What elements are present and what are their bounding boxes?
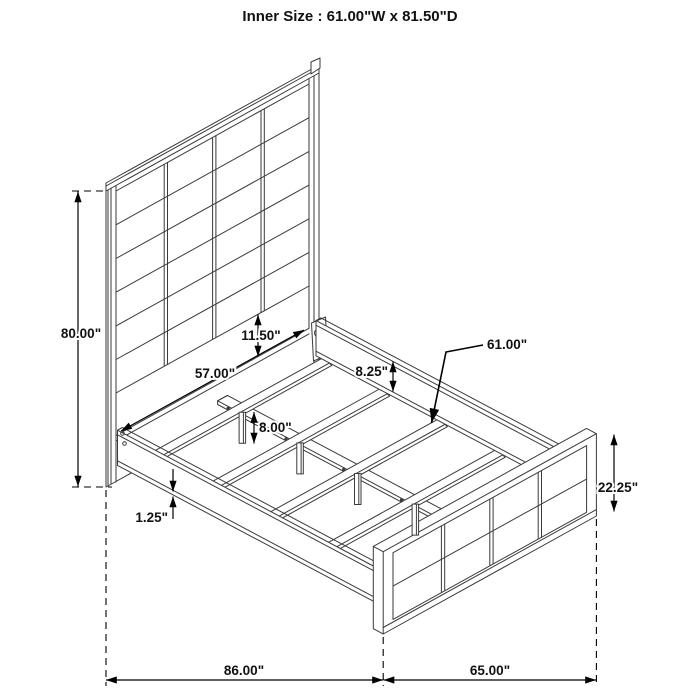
bed-dimension-diagram: 80.00" 57.00" 11.50" 8.25" 61.00" 8.00" …	[0, 0, 700, 700]
dimension-label: 57.00"	[195, 366, 235, 381]
page-title: Inner Size : 61.00"W x 81.50"D	[242, 8, 457, 25]
dimension-label: 1.25"	[135, 510, 168, 525]
dim-headboard-height: 80.00"	[61, 191, 112, 487]
center-leg	[412, 504, 419, 535]
dimension-label: 86.00"	[224, 663, 264, 678]
dimension-label: 8.25"	[355, 364, 388, 379]
center-leg	[297, 443, 304, 474]
dimension-label: 11.50"	[241, 328, 280, 343]
dimension-label: 22.25"	[598, 480, 638, 495]
dim-footboard-height: 22.25"	[598, 435, 638, 512]
diagram-canvas: 80.00" 57.00" 11.50" 8.25" 61.00" 8.00" …	[0, 0, 700, 700]
center-leg	[239, 412, 246, 443]
dimension-label: 65.00"	[470, 663, 510, 678]
dimension-label: 8.00"	[259, 420, 292, 435]
dimension-label: 80.00"	[61, 326, 101, 341]
dimension-label: 61.00"	[487, 337, 527, 352]
center-leg	[355, 474, 362, 505]
